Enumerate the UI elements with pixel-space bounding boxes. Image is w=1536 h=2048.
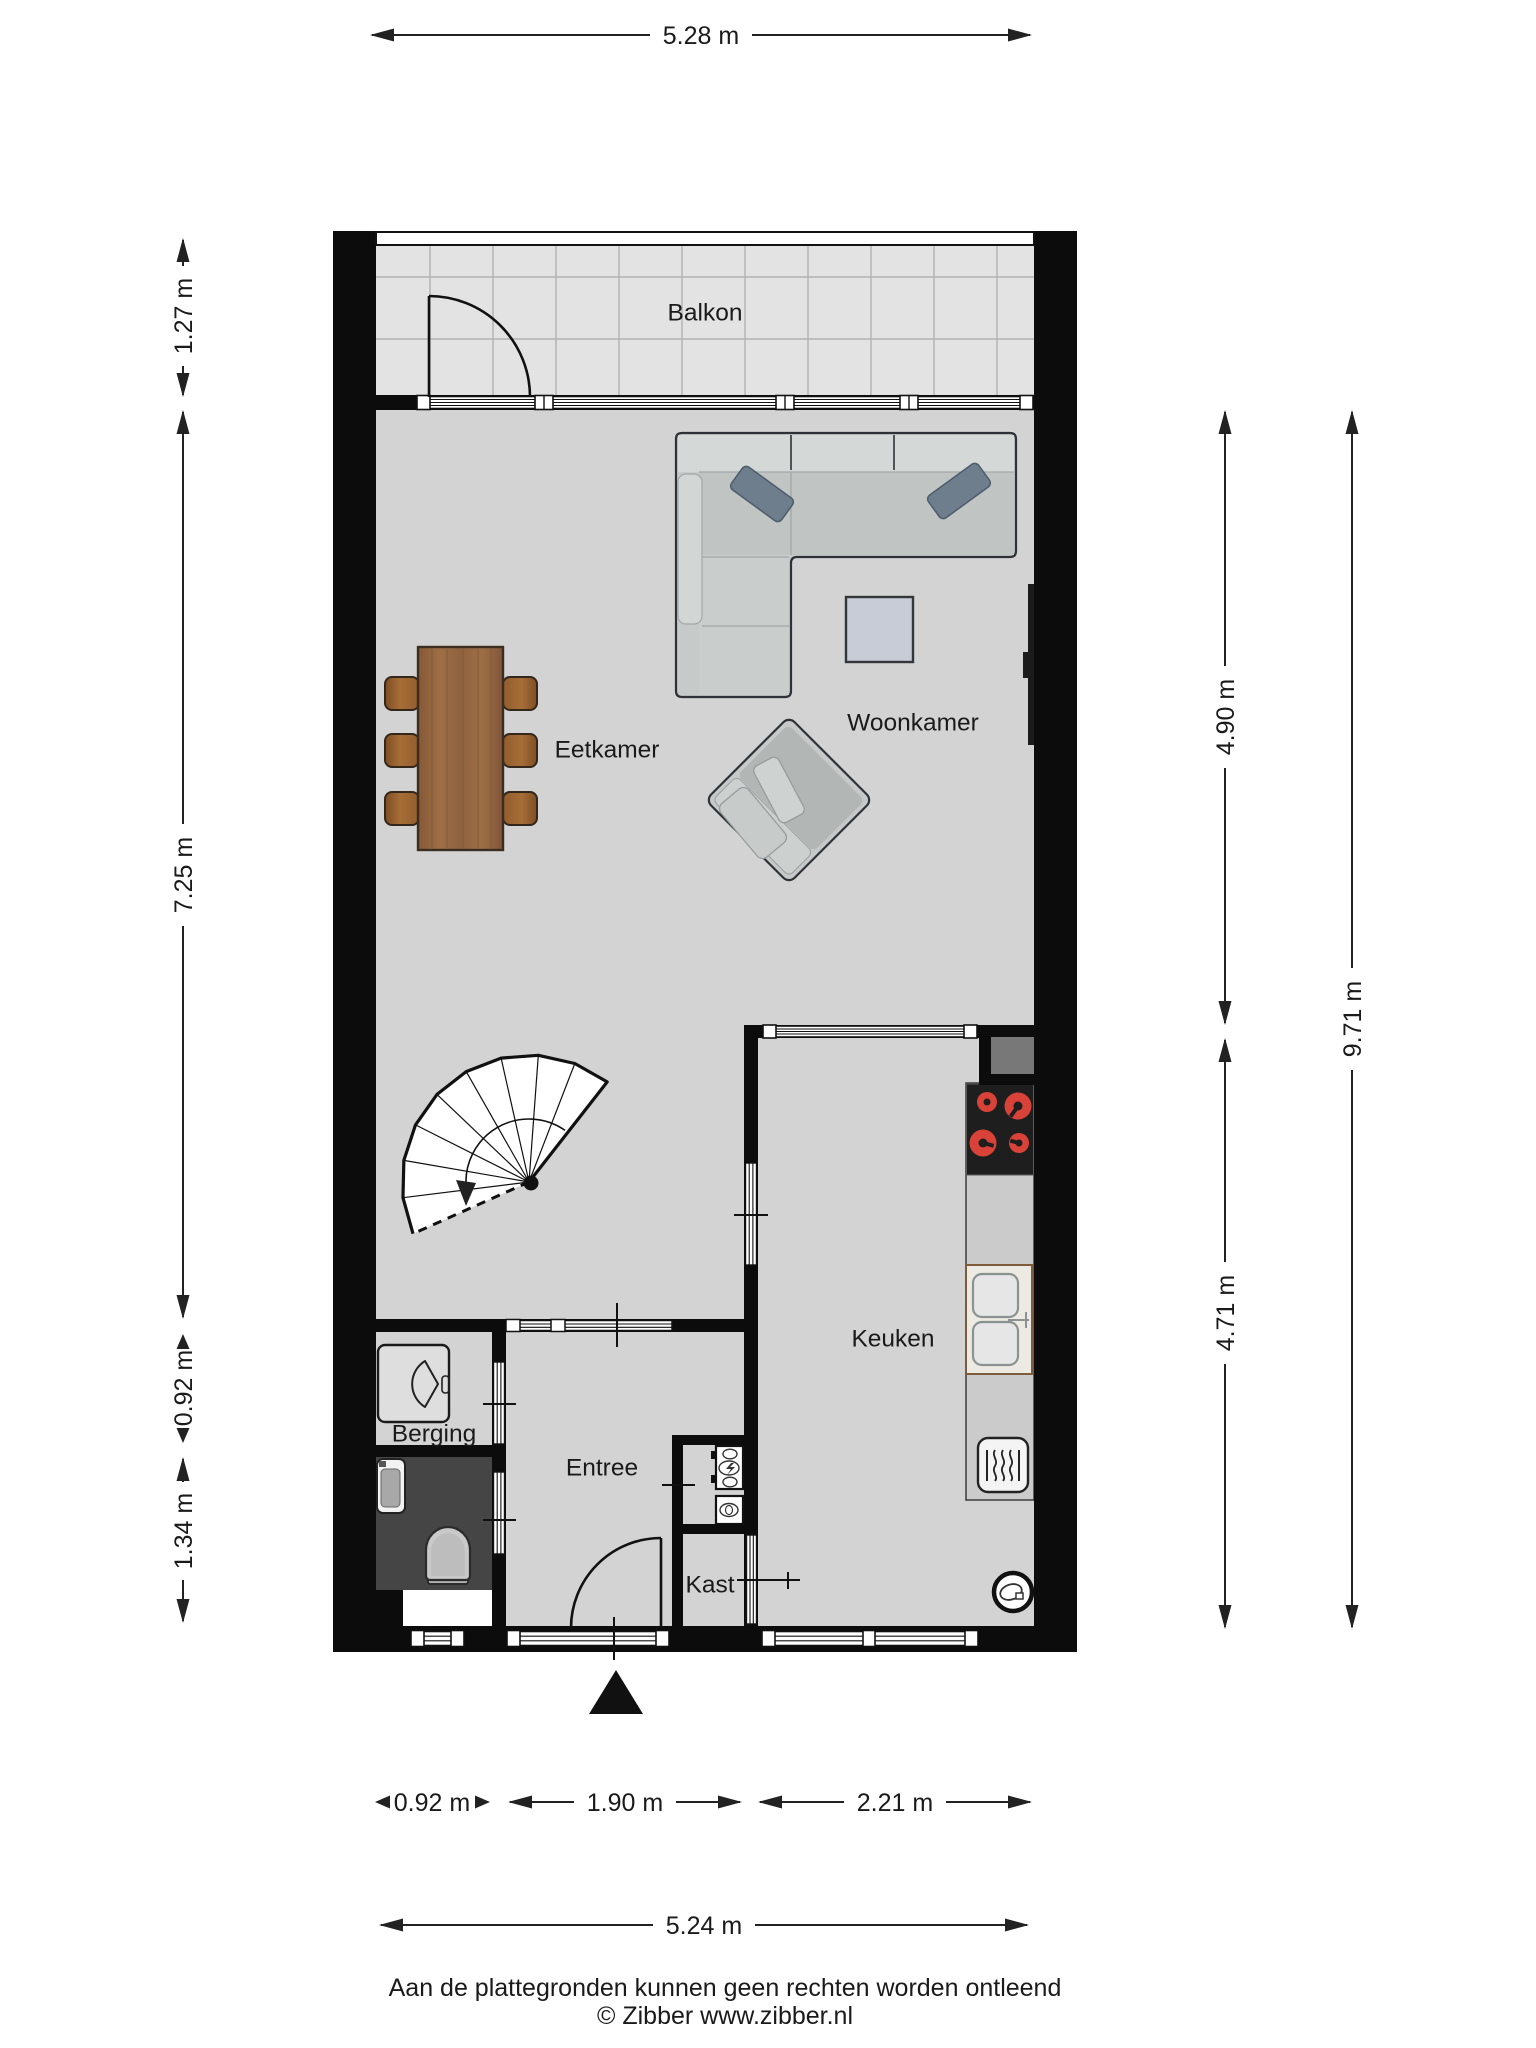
svg-text:0.92 m: 0.92 m bbox=[394, 1789, 470, 1817]
svg-text:Berging: Berging bbox=[392, 1421, 476, 1448]
svg-text:Balkon: Balkon bbox=[668, 300, 743, 327]
svg-text:9.71 m: 9.71 m bbox=[1339, 981, 1367, 1057]
svg-text:Keuken: Keuken bbox=[851, 1326, 934, 1353]
svg-text:1.27 m: 1.27 m bbox=[170, 278, 198, 354]
svg-text:1.90 m: 1.90 m bbox=[587, 1789, 663, 1817]
svg-text:Entree: Entree bbox=[566, 1455, 638, 1482]
svg-text:Eetkamer: Eetkamer bbox=[555, 737, 660, 764]
svg-text:5.24 m: 5.24 m bbox=[666, 1912, 742, 1940]
svg-text:4.71 m: 4.71 m bbox=[1212, 1275, 1240, 1351]
svg-text:© Zibber www.zibber.nl: © Zibber www.zibber.nl bbox=[597, 2002, 853, 2030]
svg-text:1.34 m: 1.34 m bbox=[170, 1493, 198, 1569]
svg-text:Woonkamer: Woonkamer bbox=[847, 710, 979, 737]
svg-text:Aan de plattegronden kunnen ge: Aan de plattegronden kunnen geen rechten… bbox=[389, 1974, 1062, 2002]
svg-text:2.21 m: 2.21 m bbox=[857, 1789, 933, 1817]
svg-text:4.90 m: 4.90 m bbox=[1212, 679, 1240, 755]
svg-text:7.25 m: 7.25 m bbox=[170, 837, 198, 913]
svg-text:5.28 m: 5.28 m bbox=[663, 22, 739, 50]
svg-text:Kast: Kast bbox=[685, 1572, 734, 1599]
svg-text:0.92 m: 0.92 m bbox=[170, 1350, 198, 1426]
